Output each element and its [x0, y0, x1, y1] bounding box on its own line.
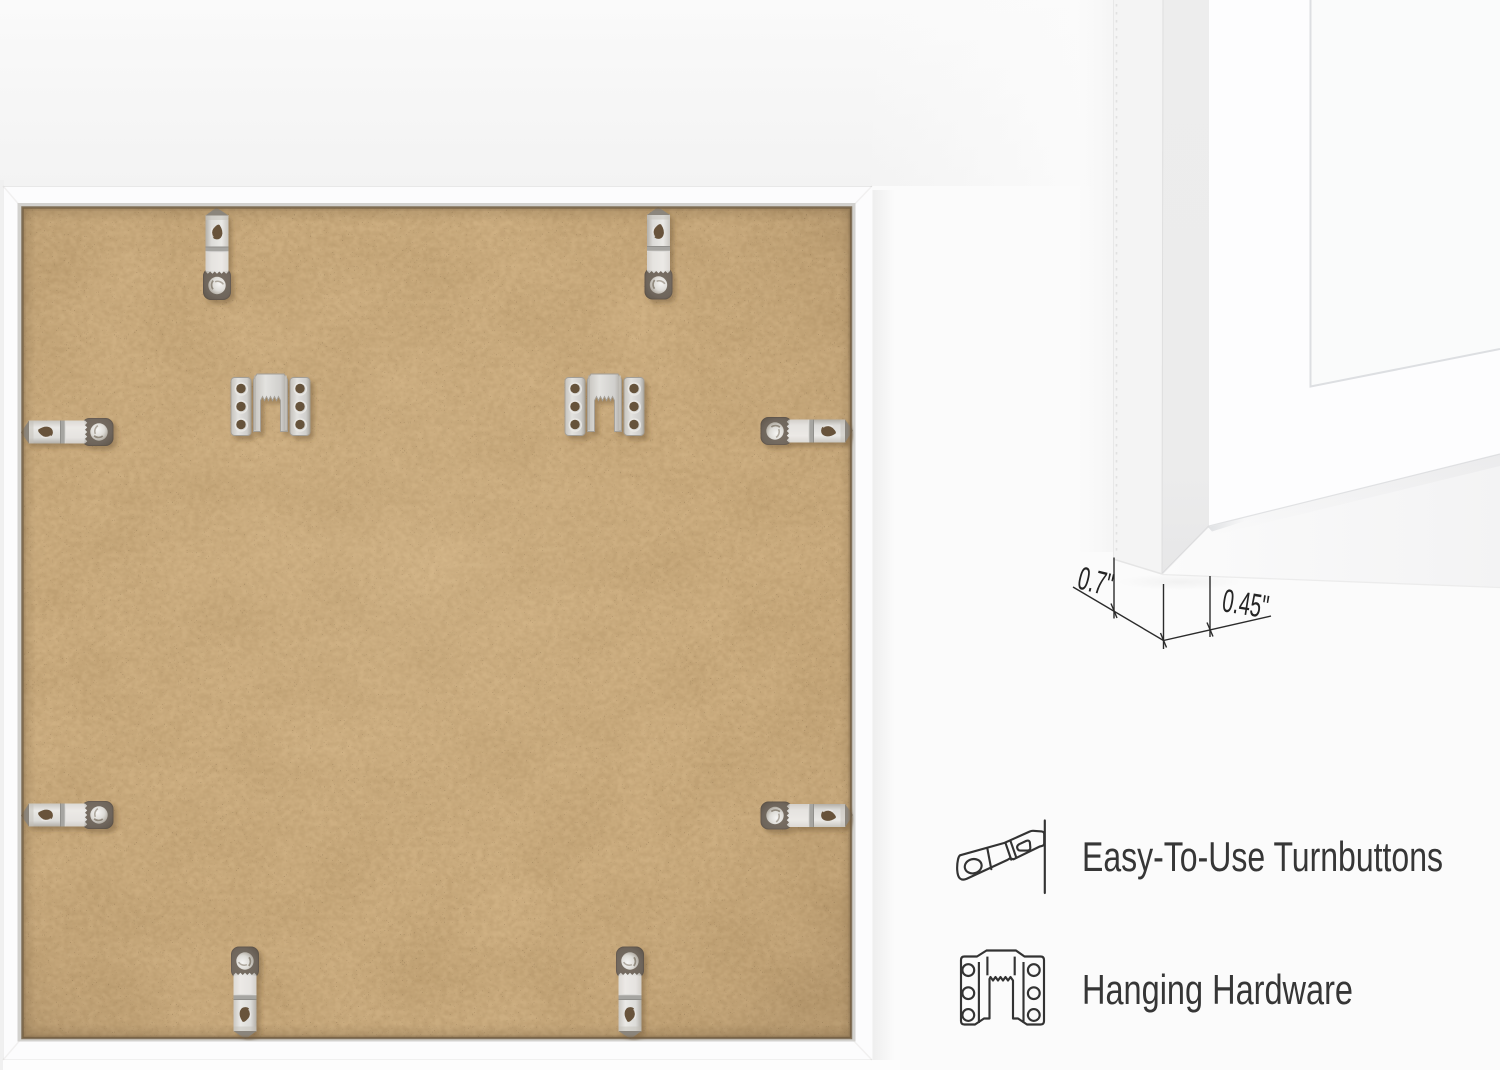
svg-text:Easy-To-Use Turnbuttons: Easy-To-Use Turnbuttons	[1082, 833, 1443, 880]
svg-text:0.45": 0.45"	[1220, 583, 1271, 626]
svg-text:Hanging Hardware: Hanging Hardware	[1082, 966, 1353, 1013]
